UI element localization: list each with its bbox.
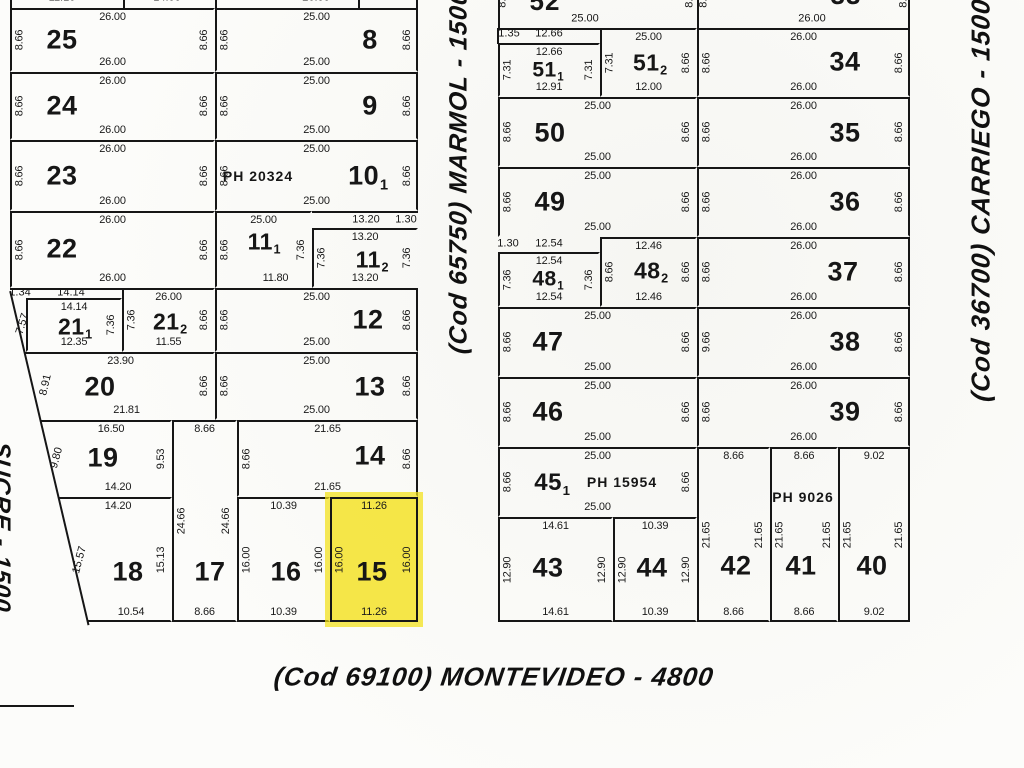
lot-number-subscript: 2	[661, 272, 669, 286]
dimension-label: 12.46	[635, 241, 662, 252]
boundary-line	[215, 0, 217, 8]
dimension-label: 8.66	[503, 402, 514, 423]
lot-37: 26.0026.008.668.66	[697, 237, 910, 307]
dimension-label: 7.36	[503, 269, 514, 290]
block-east: 25.0012.007.318.6651226.0026.008.668.663…	[0, 0, 1024, 768]
boundary-line	[10, 0, 12, 8]
dimension-label: 12.90	[682, 556, 693, 583]
dimension-label: 7.31	[605, 52, 616, 73]
dimension-label: 8.66	[702, 192, 713, 213]
annotation-label: 1.35	[498, 29, 519, 40]
dimension-label: 8.66	[605, 262, 616, 283]
lot-41: 8.668.6621.6521.65	[770, 447, 838, 622]
dimension-label: 26.00	[790, 292, 817, 303]
dimension-label: 8.66	[503, 472, 514, 493]
annotation-label: 1.34	[9, 288, 30, 299]
ph-label-41: PH 9026	[772, 489, 833, 505]
dimension-label: 12.91	[536, 82, 563, 93]
dimension-label: 8.66	[682, 402, 693, 423]
annotation-label: 8.66	[498, 0, 509, 8]
dimension-label: 26.00	[790, 82, 817, 93]
dimension-label: 8.66	[682, 472, 693, 493]
dimension-label: 26.00	[790, 222, 817, 233]
dimension-label: 25.00	[584, 101, 611, 112]
dimension-label: 26.00	[790, 171, 817, 182]
cadastral-plan: SUCRE - 1500 (Cod 65750) MARMOL - 1500 (…	[0, 0, 1024, 768]
dimension-label: 21.65	[775, 521, 786, 548]
dimension-label: 25.00	[584, 502, 611, 513]
lot-50: 25.0025.008.668.66	[498, 97, 697, 167]
dimension-label: 8.66	[723, 607, 744, 618]
lot-42: 8.668.6621.6521.65	[697, 447, 770, 622]
dimension-label: 26.00	[790, 152, 817, 163]
dimension-label: 25.00	[584, 311, 611, 322]
dimension-label: 9.66	[702, 332, 713, 353]
lot-number-46: 46	[532, 399, 563, 426]
lot-number-51-2: 512	[633, 52, 667, 75]
dimension-label: 12.90	[503, 556, 514, 583]
dimension-label: 21.65	[755, 521, 766, 548]
lot-34: 26.0026.008.668.66	[697, 28, 910, 97]
ph-label-45-1: PH 15954	[587, 474, 657, 490]
lot-number-37: 37	[827, 259, 858, 286]
dimension-label: 9.02	[864, 451, 885, 462]
dimension-label: 26.00	[790, 311, 817, 322]
lot-number-subscript: 1	[557, 72, 564, 84]
dimension-label: 25.00	[584, 451, 611, 462]
lot-35: 26.0026.008.668.66	[697, 97, 910, 167]
dimension-label: 26.00	[790, 32, 817, 43]
dimension-label: 12.00	[635, 82, 662, 93]
lot-number-42: 42	[720, 553, 751, 580]
dimension-label: 12.46	[635, 292, 662, 303]
dimension-label: 26.00	[790, 362, 817, 373]
dimension-label: 26.00	[790, 101, 817, 112]
dimension-label: 7.31	[585, 60, 596, 81]
annotation-label: 14.00	[153, 0, 181, 4]
lot-number-subscript: 1	[557, 281, 564, 293]
lot-number-49: 49	[534, 189, 565, 216]
lot-number-38: 38	[829, 329, 860, 356]
dimension-label: 14.61	[542, 521, 569, 532]
lot-number-subscript: 1	[563, 483, 571, 498]
street-label-sucre: SUCRE - 1500	[0, 440, 15, 614]
dimension-label: 8.66	[895, 122, 906, 143]
boundary-line	[358, 0, 360, 8]
lot-36: 26.0026.008.668.66	[697, 167, 910, 237]
annotation-label: 11.10	[49, 0, 76, 4]
dimension-label: 26.00	[790, 241, 817, 252]
dimension-label: 8.66	[702, 52, 713, 73]
dimension-label: 8.66	[895, 262, 906, 283]
dimension-label: 8.66	[895, 402, 906, 423]
dimension-label: 8.66	[702, 122, 713, 143]
annotation-label: 12.54	[535, 239, 563, 250]
lot-47: 25.0025.008.668.66	[498, 307, 697, 377]
annotation-label: 1.30	[497, 239, 518, 250]
annotation-label: 8.66	[899, 0, 910, 8]
dimension-label: 8.66	[503, 192, 514, 213]
boundary-line	[123, 0, 125, 8]
dimension-label: 21.65	[823, 521, 834, 548]
dimension-label: 21.65	[895, 521, 906, 548]
dimension-label: 8.66	[682, 192, 693, 213]
dimension-label: 9.02	[864, 607, 885, 618]
lot-number-48-1: 481	[532, 269, 563, 290]
annotation-label: 8.66	[685, 0, 696, 8]
dimension-label: 8.66	[682, 52, 693, 73]
clipped-lot-number: 52	[530, 0, 561, 14]
annotation-label: 12.66	[535, 29, 563, 40]
lot-39: 26.0026.008.668.66	[697, 377, 910, 447]
lot-number-41: 41	[785, 553, 816, 580]
lot-number-34: 34	[829, 49, 860, 76]
dimension-label: 21.65	[843, 521, 854, 548]
annotation-label: 26.00	[798, 14, 826, 25]
dimension-label: 8.66	[503, 332, 514, 353]
boundary-line	[0, 705, 74, 707]
lot-number-35: 35	[829, 120, 860, 147]
lot-number-47: 47	[532, 329, 563, 356]
lot-number-44: 44	[636, 555, 667, 582]
dimension-label: 26.00	[790, 432, 817, 443]
lot-number-45-1: 451	[534, 471, 570, 495]
dimension-label: 12.66	[536, 47, 563, 58]
dimension-label: 8.66	[723, 451, 744, 462]
dimension-label: 8.66	[682, 122, 693, 143]
dimension-label: 8.66	[794, 607, 815, 618]
street-label-montevideo: (Cod 69100) MONTEVIDEO - 4800	[272, 662, 716, 693]
dimension-label: 25.00	[584, 152, 611, 163]
dimension-label: 8.66	[702, 402, 713, 423]
lot-49: 25.0025.008.668.66	[498, 167, 697, 237]
dimension-label: 7.36	[585, 269, 596, 290]
street-label-carriego: (Cod 36700) CARRIEGO - 1500	[966, 0, 997, 403]
street-label-marmol: (Cod 65750) MARMOL - 1500	[445, 0, 474, 355]
dimension-label: 14.61	[542, 607, 569, 618]
dimension-label: 8.66	[895, 332, 906, 353]
dimension-label: 8.66	[682, 332, 693, 353]
annotation-label: 1.30	[395, 215, 416, 226]
dimension-label: 8.66	[895, 192, 906, 213]
dimension-label: 12.90	[598, 556, 609, 583]
dimension-label: 10.39	[642, 607, 669, 618]
annotation-label: 8.66	[699, 0, 710, 8]
lot-number-39: 39	[829, 399, 860, 426]
annotation-label: 14.14	[57, 288, 85, 299]
dimension-label: 12.90	[618, 556, 629, 583]
lot-number-36: 36	[829, 189, 860, 216]
dimension-label: 8.66	[682, 262, 693, 283]
boundary-line	[416, 0, 418, 8]
dimension-label: 25.00	[584, 381, 611, 392]
lot-38: 26.0026.009.668.66	[697, 307, 910, 377]
clipped-lot-number: 33	[831, 0, 862, 8]
lot-number-40: 40	[856, 553, 887, 580]
lot-number-51-1: 511	[532, 60, 563, 81]
lot-46: 25.0025.008.668.66	[498, 377, 697, 447]
lot-number-50: 50	[534, 120, 565, 147]
dimension-label: 12.54	[536, 256, 563, 267]
dimension-label: 26.00	[790, 381, 817, 392]
dimension-label: 25.00	[584, 222, 611, 233]
dimension-label: 8.66	[794, 451, 815, 462]
dimension-label: 8.66	[503, 122, 514, 143]
dimension-label: 7.31	[503, 60, 514, 81]
dimension-label: 8.66	[702, 262, 713, 283]
dimension-label: 25.00	[584, 171, 611, 182]
lot-number-48-2: 482	[634, 260, 668, 283]
dimension-label: 25.00	[635, 32, 662, 43]
dimension-label: 25.00	[584, 362, 611, 373]
lot-number-43: 43	[532, 555, 563, 582]
dimension-label: 21.65	[702, 521, 713, 548]
annotation-label: 13.20	[352, 215, 380, 226]
dimension-label: 8.66	[895, 52, 906, 73]
lot-40: 9.029.0221.6521.65	[838, 447, 910, 622]
dimension-label: 10.39	[642, 521, 669, 532]
dimension-label: 25.00	[584, 432, 611, 443]
annotation-label: 26.00	[302, 0, 330, 4]
dimension-label: 12.54	[536, 292, 563, 303]
lot-number-subscript: 2	[660, 64, 668, 78]
annotation-label: 25.00	[571, 14, 599, 25]
